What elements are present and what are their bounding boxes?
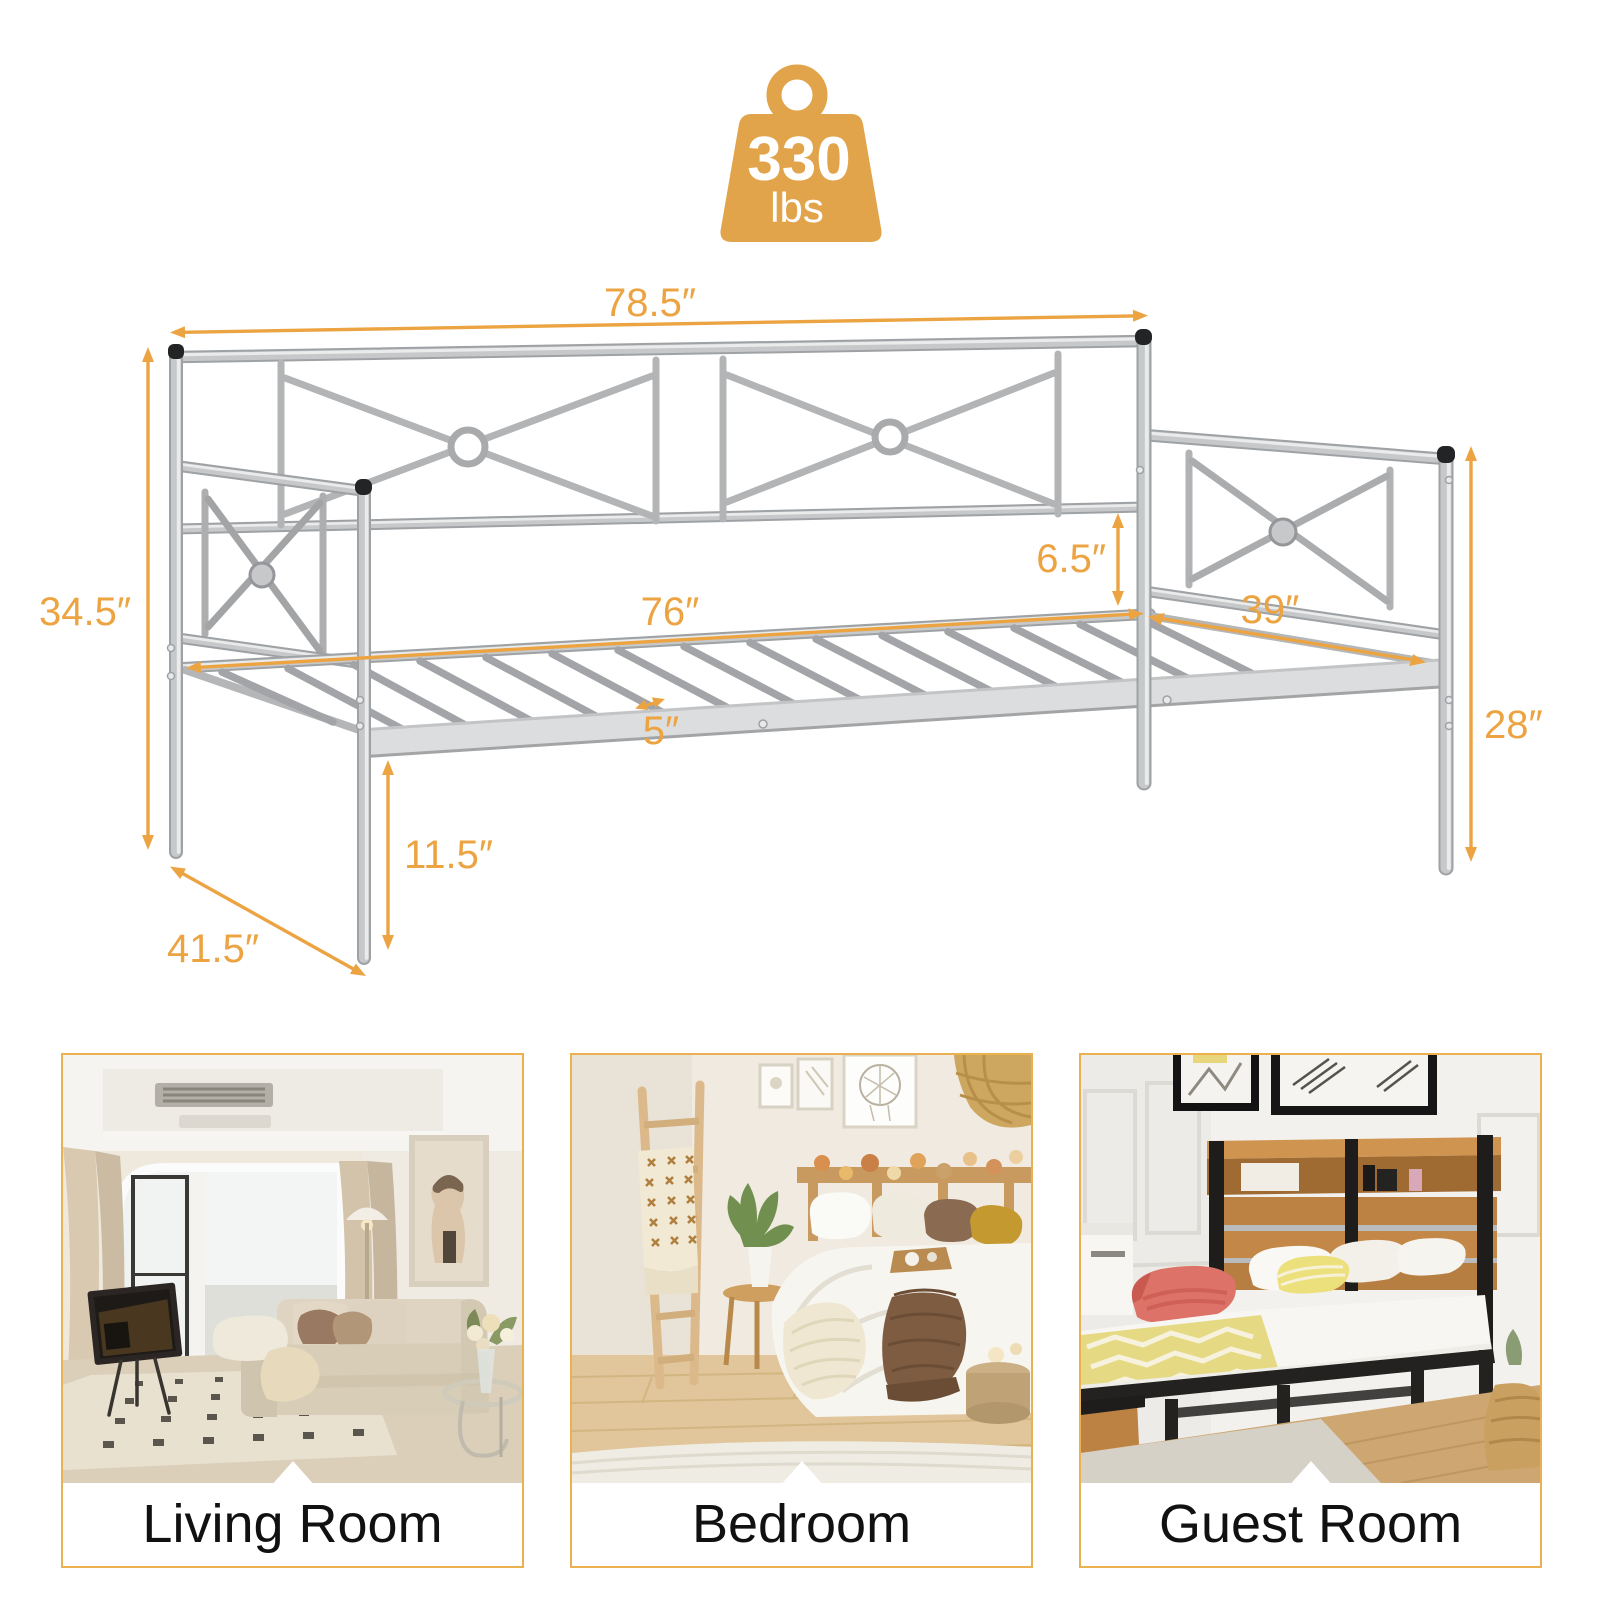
svg-text:39″: 39″ xyxy=(1241,588,1300,632)
svg-text:lbs: lbs xyxy=(770,184,824,231)
svg-text:11.5″: 11.5″ xyxy=(404,833,493,877)
svg-text:34.5″: 34.5″ xyxy=(39,590,131,634)
svg-text:6.5″: 6.5″ xyxy=(1036,537,1106,581)
svg-text:76″: 76″ xyxy=(641,590,700,634)
svg-text:5″: 5″ xyxy=(643,709,679,753)
svg-text:78.5″: 78.5″ xyxy=(604,281,696,325)
svg-text:28″: 28″ xyxy=(1484,703,1543,747)
svg-text:41.5″: 41.5″ xyxy=(167,927,259,971)
